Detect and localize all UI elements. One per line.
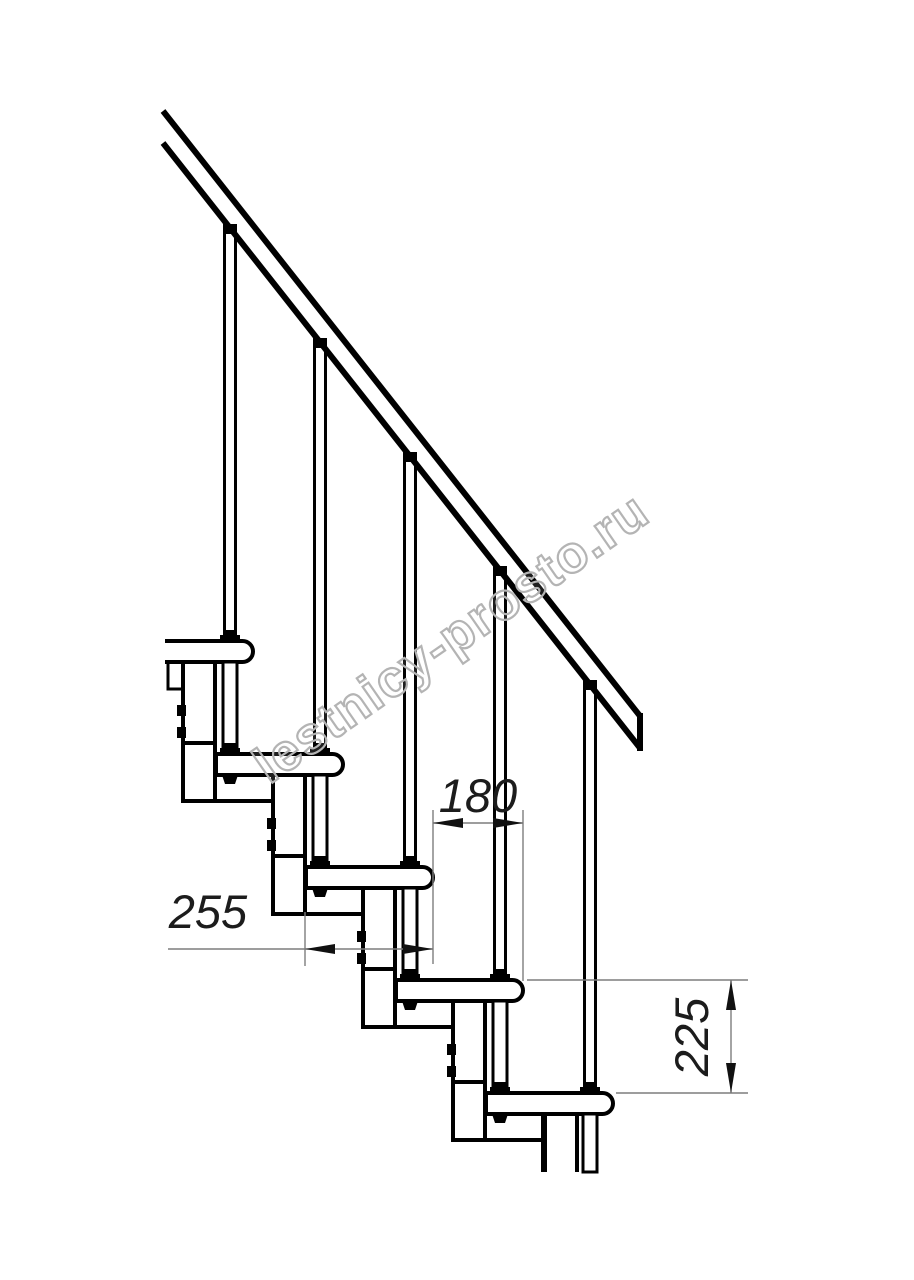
connector-rod-2 <box>313 775 327 867</box>
dimension-180: 180 <box>433 769 523 981</box>
dimension-180-label: 180 <box>439 769 517 822</box>
arrowhead-up <box>726 980 736 1010</box>
tread-5 <box>486 1093 613 1114</box>
staircase-technical-drawing: 180 255 225 lestnicy-prosto.ru <box>0 0 914 1280</box>
staircase-drawing-canvas: 180 255 225 lestnicy-prosto.ru <box>0 0 914 1280</box>
arrowhead-down <box>726 1063 736 1093</box>
arrowhead-left <box>305 944 335 954</box>
tread-1 <box>165 641 253 662</box>
tread-3 <box>306 867 433 888</box>
support-column-5 <box>543 1114 577 1172</box>
connector-rod-5 <box>583 1114 597 1172</box>
dimension-225-label: 225 <box>665 997 718 1077</box>
connector-rod-3 <box>403 888 417 980</box>
connector-rod-4 <box>493 1001 507 1093</box>
baluster-1 <box>225 232 236 641</box>
upper-landing-cut-line <box>168 662 183 689</box>
tread-4 <box>396 980 523 1001</box>
dimension-225: 225 <box>527 980 748 1093</box>
baluster-5 <box>585 688 596 1093</box>
dimension-255-label: 255 <box>168 885 248 938</box>
watermark-text: lestnicy-prosto.ru <box>243 481 659 794</box>
connector-rod-1 <box>223 662 237 754</box>
